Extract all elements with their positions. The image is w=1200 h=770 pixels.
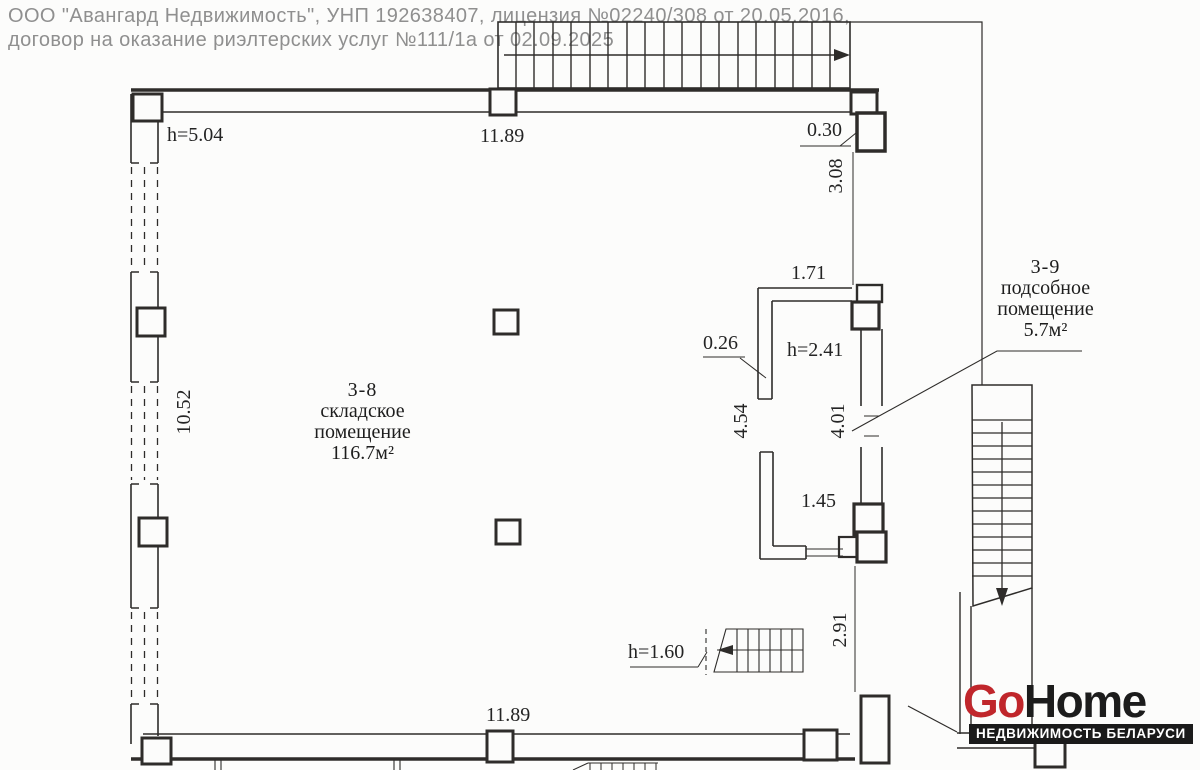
door-sill: [806, 549, 843, 556]
top-staircase-icon: [498, 22, 982, 385]
utility-room-leader-line: [852, 351, 1082, 431]
dim-inner-left-height: 4.54: [730, 386, 752, 456]
column: [857, 532, 886, 562]
column: [142, 738, 171, 764]
bottom-stair-partial: [573, 763, 658, 770]
column: [487, 731, 513, 762]
room-number: 3-9: [1031, 256, 1061, 278]
column: [133, 94, 162, 121]
dim-stair-headroom: h=1.60: [628, 641, 684, 664]
dim-top-width: 11.89: [480, 125, 524, 148]
left-wall: [131, 94, 167, 744]
column: [139, 518, 167, 546]
column: [851, 92, 877, 114]
dim-inner-bottom-width: 1.45: [801, 490, 836, 513]
gohome-logo: GoHome НЕДВИЖИМОСТЬ БЕЛАРУСИ: [963, 678, 1193, 744]
dim-inner-wall-thickness: 0.26: [703, 332, 738, 355]
dim-inner-top-width: 1.71: [791, 262, 826, 285]
column: [804, 730, 837, 760]
gohome-logo-text: GoHome: [963, 678, 1193, 724]
dashed-wall: [132, 167, 158, 700]
gohome-logo-tagline: НЕДВИЖИМОСТЬ БЕЛАРУСИ: [969, 724, 1193, 744]
dim-bottom-width: 11.89: [486, 704, 530, 727]
dim-ceiling-height-inner: h=2.41: [787, 339, 843, 362]
dim-left-height: 10.52: [173, 377, 195, 447]
floor-plan-page: ООО "Авангард Недвижимость", УНП 1926384…: [0, 0, 1200, 770]
column: [494, 310, 518, 334]
interior-columns: [494, 310, 520, 544]
column: [861, 696, 889, 763]
column: [852, 302, 879, 329]
utility-room-label: 3-9 подсобное помещение 5.7м²: [973, 257, 1118, 341]
dim-inner-right-height: 4.01: [827, 386, 849, 456]
column: [490, 89, 516, 115]
column: [496, 520, 520, 544]
door-swing-line: [908, 706, 957, 732]
dim-ceiling-height-main: h=5.04: [167, 124, 223, 147]
dim-right-upper: 3.08: [825, 141, 847, 211]
dim-lower-right: 2.91: [829, 595, 851, 665]
dim-wall-offset: 0.30: [807, 119, 842, 142]
wall-projection: [857, 113, 885, 151]
bottom-wall: [131, 696, 957, 770]
stair-direction-arrow-icon: [996, 588, 1008, 606]
stair-direction-arrow-icon: [834, 49, 850, 61]
room-number: 3-8: [348, 379, 378, 401]
storage-room-label: 3-8 складское помещение 116.7м²: [285, 380, 440, 464]
column: [137, 308, 165, 336]
